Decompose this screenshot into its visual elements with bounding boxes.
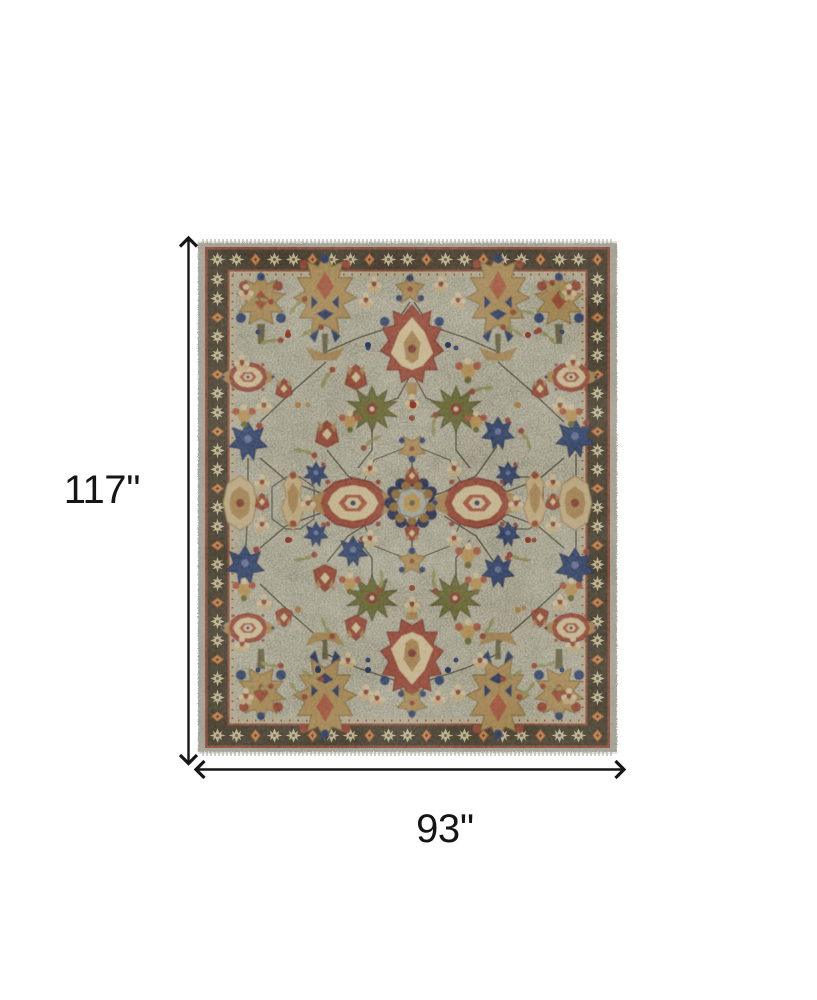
- svg-text:117'': 117'': [64, 468, 141, 512]
- svg-text:93'': 93'': [416, 807, 474, 851]
